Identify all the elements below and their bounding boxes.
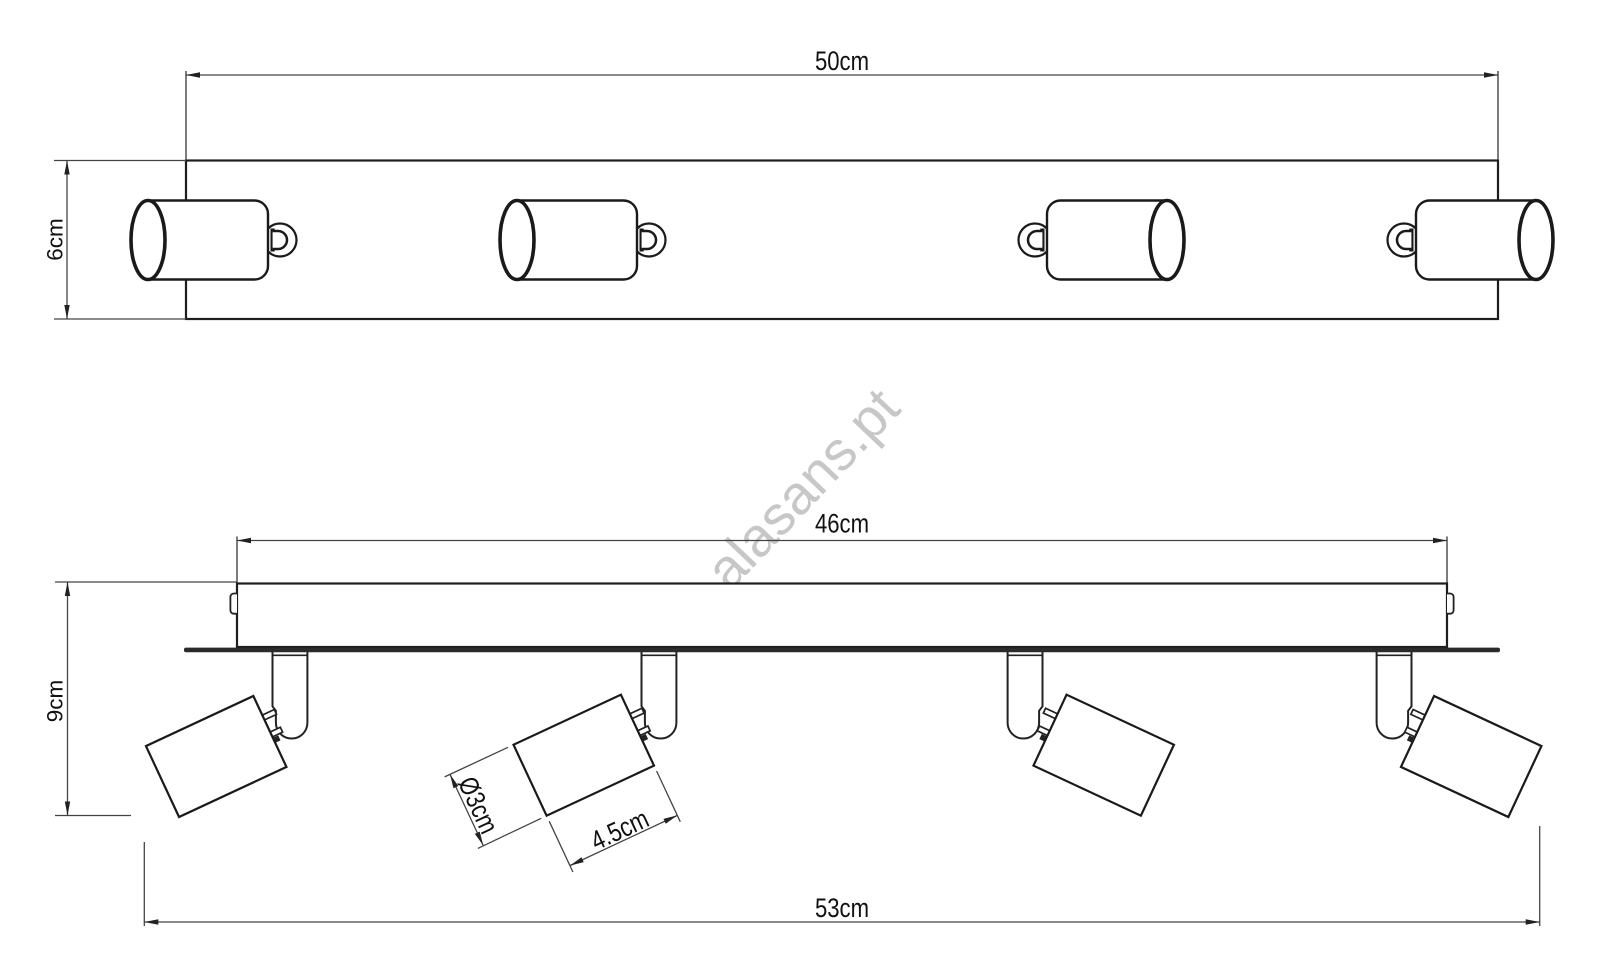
- svg-text:46cm: 46cm: [815, 510, 869, 540]
- svg-text:53cm: 53cm: [815, 894, 869, 924]
- svg-text:6cm: 6cm: [43, 218, 68, 261]
- svg-text:9cm: 9cm: [43, 680, 68, 723]
- svg-text:50cm: 50cm: [815, 47, 869, 77]
- svg-text:4.5cm: 4.5cm: [586, 804, 653, 856]
- svg-text:Ø3cm: Ø3cm: [452, 773, 504, 839]
- svg-text:alasans.pt: alasans.pt: [694, 376, 912, 601]
